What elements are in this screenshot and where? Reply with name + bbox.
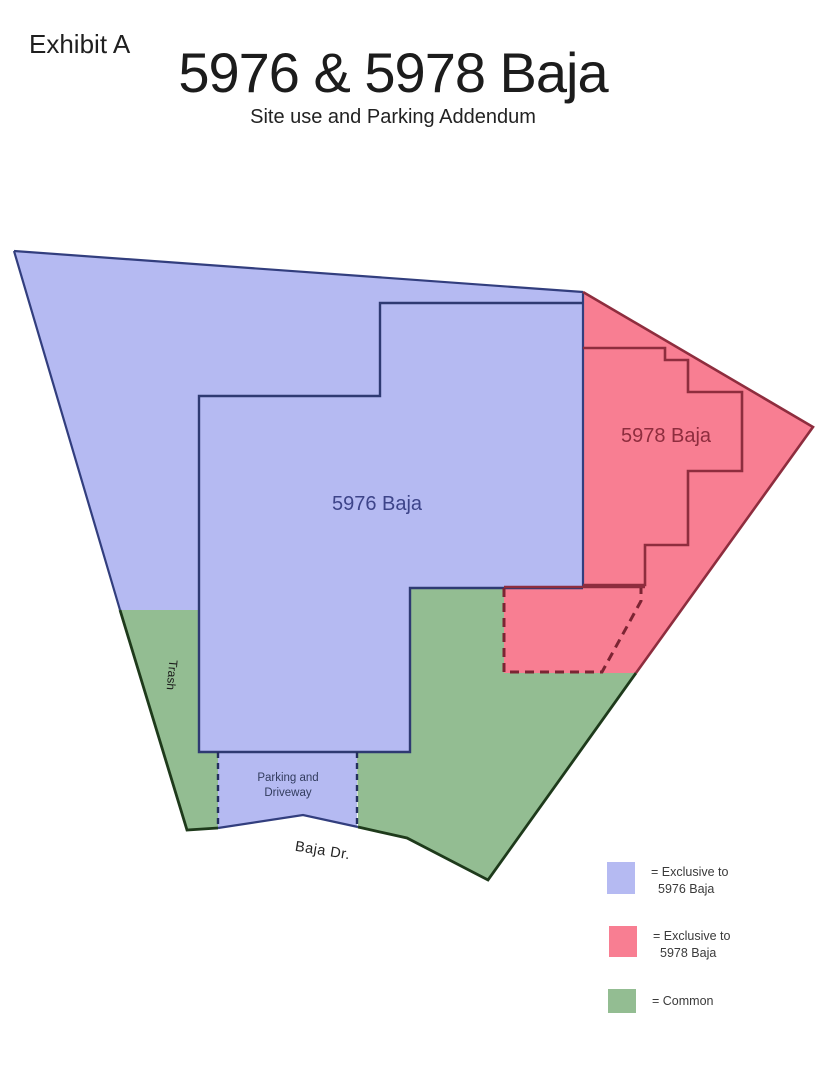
legend-line1: = Exclusive to [653,928,730,945]
label-parking-line2: Driveway [264,787,312,799]
legend-text: = Exclusive to 5976 Baja [651,864,728,898]
label-parking-line1: Parking and [257,772,318,784]
legend-line2: 5976 Baja [651,881,728,898]
legend-line1: = Common [652,993,713,1010]
label-trash: Trash [164,659,181,690]
legend-swatch-blue [607,862,635,894]
label-5976-baja: 5976 Baja [332,493,423,515]
site-plan-map: 5976 Baja 5978 Baja Trash Parking and Dr… [0,0,821,1080]
legend-text: = Common [652,993,713,1010]
legend-line2: 5978 Baja [653,945,730,962]
label-5978-baja: 5978 Baja [621,425,712,447]
legend-line1: = Exclusive to [651,864,728,881]
legend-swatch-red [609,926,637,957]
legend-text: = Exclusive to 5978 Baja [653,928,730,962]
exhibit-page: Exhibit A 5976 & 5978 Baja Site use and … [0,0,821,1080]
legend-swatch-green [608,989,636,1013]
label-baja-dr: Baja Dr. [294,839,351,863]
